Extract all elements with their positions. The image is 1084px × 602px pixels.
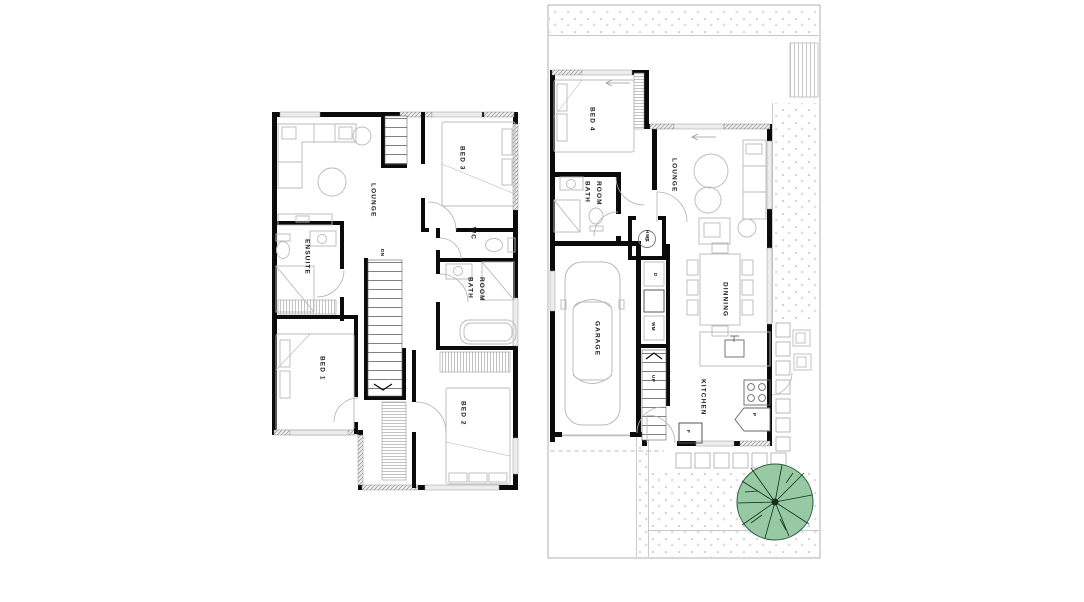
label-dining: DINNING [719, 282, 730, 317]
label-pantry: P [750, 413, 758, 416]
bed2-wardrobe [440, 352, 510, 372]
label-kitchen: KITCHEN [697, 379, 708, 416]
label-garage: GARAGE [591, 321, 602, 356]
label-bed4: BED 4 [586, 107, 597, 132]
label-bed3: BED 3 [456, 146, 467, 171]
upper-stair-flight [368, 260, 402, 396]
ground-floor-plan-drawing [546, 3, 822, 560]
paving-column [776, 323, 790, 451]
hall-closet [382, 402, 406, 480]
label-washing-machine: WM [649, 322, 657, 331]
bed4-wardrobe [634, 73, 644, 129]
label-ground-bathroom: BATH ROOM [581, 181, 604, 213]
label-bed1: BED 1 [316, 356, 327, 381]
label-bed2: BED 2 [457, 401, 468, 426]
label-fridge: F [684, 430, 692, 433]
garden-strip-top [549, 8, 819, 35]
label-upper-lounge: LOUNGE [367, 183, 378, 217]
label-stairs-up: UP [649, 375, 657, 382]
floor-plan-canvas: LOUNGE BED 3 ENSUITE WC BATH ROOM DN BED… [0, 0, 1084, 602]
label-ground-lounge: LOUNGE [668, 158, 679, 192]
upper-stair-flight-top [385, 116, 407, 164]
label-upper-bathroom: BATH ROOM [464, 277, 487, 309]
ground-stair-flight [642, 350, 666, 440]
garden-strip-right [772, 103, 819, 323]
label-hwc: HWC [643, 230, 651, 242]
label-ensuite: ENSUITE [301, 239, 312, 275]
deck-boards [790, 43, 818, 97]
label-wc: WC [467, 227, 478, 240]
tree [737, 464, 813, 540]
label-stairs-dn: DN [378, 249, 386, 256]
label-dryer: D [651, 273, 659, 277]
